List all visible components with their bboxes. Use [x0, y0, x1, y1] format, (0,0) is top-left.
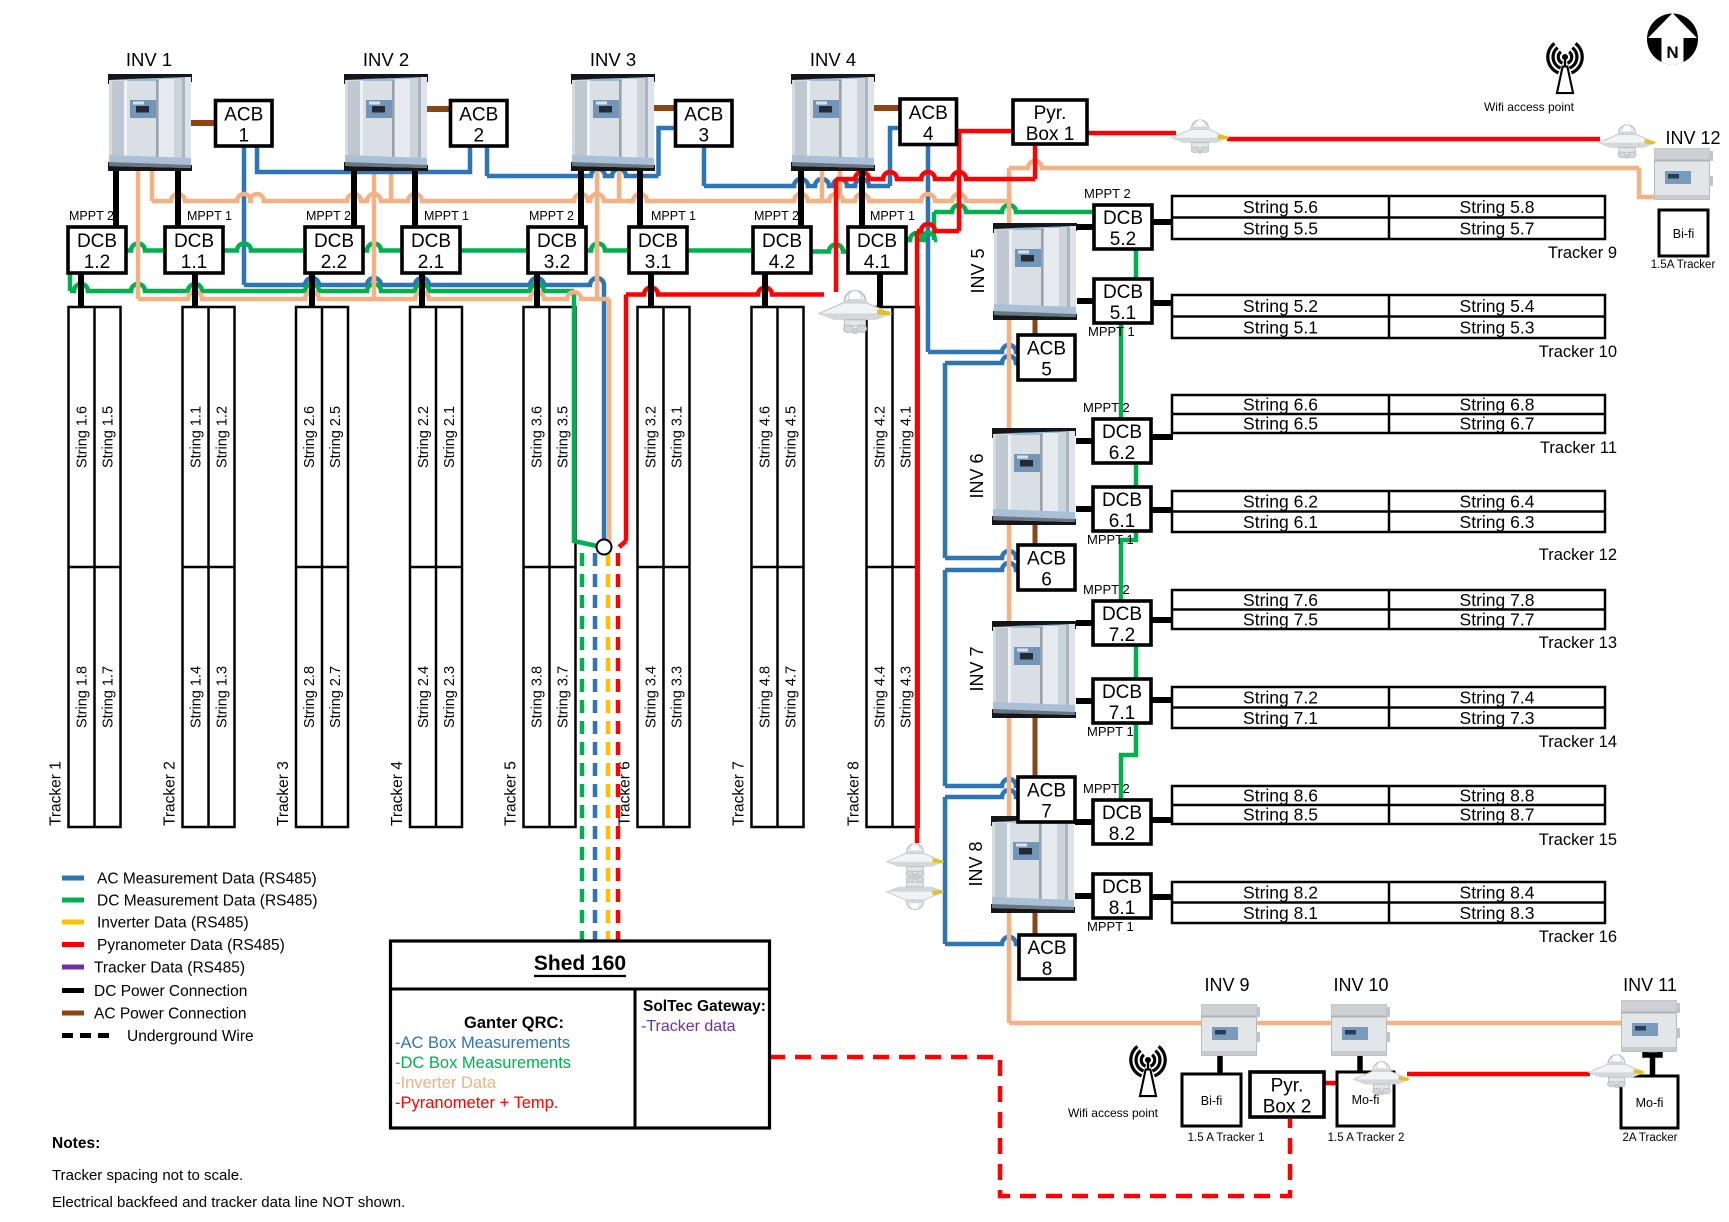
- svg-text:Bi-fi: Bi-fi: [1673, 227, 1695, 241]
- svg-text:1.5 A Tracker 1: 1.5 A Tracker 1: [1188, 1132, 1265, 1144]
- svg-text:5: 5: [1041, 360, 1052, 381]
- svg-text:6.1: 6.1: [1109, 511, 1135, 532]
- svg-text:String 3.3: String 3.3: [670, 666, 686, 728]
- svg-text:String 4.6: String 4.6: [758, 406, 774, 468]
- svg-text:Tracker 10: Tracker 10: [1539, 343, 1617, 361]
- svg-text:7: 7: [1041, 802, 1052, 823]
- svg-text:MPPT 2: MPPT 2: [306, 209, 351, 223]
- svg-text:8: 8: [1042, 959, 1053, 980]
- svg-text:ACB: ACB: [224, 104, 263, 125]
- svg-text:String 5.7: String 5.7: [1460, 218, 1535, 238]
- svg-text:String 4.4: String 4.4: [873, 666, 889, 728]
- svg-text:DCB: DCB: [1103, 282, 1143, 303]
- svg-text:-Pyranometer + Temp.: -Pyranometer + Temp.: [395, 1094, 558, 1112]
- svg-text:7.2: 7.2: [1109, 625, 1135, 646]
- svg-text:INV 12: INV 12: [1665, 128, 1720, 148]
- svg-text:INV 4: INV 4: [810, 49, 856, 70]
- svg-text:ACB: ACB: [1027, 938, 1066, 959]
- svg-text:MPPT 2: MPPT 2: [754, 209, 799, 223]
- svg-text:Ganter QRC:: Ganter QRC:: [464, 1014, 564, 1032]
- svg-text:MPPT 1: MPPT 1: [870, 209, 915, 223]
- svg-text:8.1: 8.1: [1109, 898, 1135, 919]
- svg-text:String 4.3: String 4.3: [899, 666, 915, 728]
- svg-text:String 5.2: String 5.2: [1243, 296, 1318, 316]
- svg-text:String 7.6: String 7.6: [1243, 590, 1318, 610]
- svg-text:Tracker 15: Tracker 15: [1539, 831, 1617, 849]
- svg-text:Tracker 3: Tracker 3: [275, 761, 292, 826]
- svg-text:2A Tracker: 2A Tracker: [1623, 1132, 1678, 1144]
- svg-text:Tracker 13: Tracker 13: [1539, 634, 1617, 652]
- svg-text:String 8.6: String 8.6: [1243, 786, 1318, 806]
- svg-text:DCB: DCB: [1102, 490, 1142, 511]
- svg-text:DCB: DCB: [411, 231, 451, 252]
- svg-text:N: N: [1666, 43, 1678, 62]
- svg-text:String 2.8: String 2.8: [302, 666, 318, 728]
- svg-text:Tracker 7: Tracker 7: [731, 761, 748, 826]
- svg-text:String 5.8: String 5.8: [1460, 197, 1535, 217]
- svg-text:String 1.3: String 1.3: [215, 666, 231, 728]
- svg-text:Box 2: Box 2: [1263, 1097, 1312, 1118]
- svg-text:Wifi access point: Wifi access point: [1484, 100, 1575, 114]
- svg-text:MPPT 1: MPPT 1: [1088, 324, 1135, 339]
- svg-text:DCB: DCB: [762, 231, 802, 252]
- svg-text:String 1.8: String 1.8: [75, 666, 91, 728]
- svg-text:2.2: 2.2: [321, 252, 347, 273]
- svg-text:MPPT 1: MPPT 1: [1087, 724, 1134, 739]
- svg-text:MPPT 1: MPPT 1: [424, 209, 469, 223]
- svg-text:1.5 A Tracker 2: 1.5 A Tracker 2: [1328, 1132, 1405, 1144]
- svg-text:Tracker 14: Tracker 14: [1539, 733, 1617, 751]
- svg-text:String 8.2: String 8.2: [1243, 882, 1318, 902]
- svg-text:String 3.7: String 3.7: [556, 666, 572, 728]
- svg-text:DC Measurement Data (RS485): DC Measurement Data (RS485): [97, 893, 318, 910]
- svg-text:Pyranometer Data (RS485): Pyranometer Data (RS485): [97, 937, 285, 954]
- svg-text:String 3.2: String 3.2: [644, 406, 660, 468]
- svg-text:String 8.7: String 8.7: [1460, 805, 1535, 825]
- svg-text:Inverter Data (RS485): Inverter Data (RS485): [97, 915, 249, 932]
- svg-text:String 2.4: String 2.4: [416, 666, 432, 728]
- svg-text:MPPT 2: MPPT 2: [1083, 400, 1130, 415]
- svg-text:String 5.1: String 5.1: [1243, 317, 1318, 337]
- svg-text:4.1: 4.1: [864, 252, 890, 273]
- svg-text:5.1: 5.1: [1110, 303, 1136, 324]
- svg-text:ACB: ACB: [684, 104, 723, 125]
- svg-text:Box 1: Box 1: [1026, 124, 1075, 145]
- svg-text:3.2: 3.2: [544, 252, 570, 273]
- svg-text:Tracker Data (RS485): Tracker Data (RS485): [94, 960, 245, 977]
- svg-text:String 6.6: String 6.6: [1243, 395, 1318, 415]
- svg-text:String 5.5: String 5.5: [1243, 218, 1318, 238]
- svg-text:DCB: DCB: [174, 231, 214, 252]
- svg-text:DC Power Connection: DC Power Connection: [94, 983, 247, 1000]
- svg-text:Bi-fi: Bi-fi: [1201, 1094, 1223, 1108]
- svg-text:1: 1: [238, 125, 249, 146]
- svg-text:Electrical backfeed and tracke: Electrical backfeed and tracker data lin…: [52, 1194, 405, 1211]
- svg-text:String 5.4: String 5.4: [1460, 296, 1535, 316]
- svg-text:String 2.6: String 2.6: [302, 406, 318, 468]
- svg-text:String 4.7: String 4.7: [784, 666, 800, 728]
- svg-text:String 6.8: String 6.8: [1460, 395, 1535, 415]
- svg-text:1.5A Tracker: 1.5A Tracker: [1651, 259, 1716, 271]
- svg-text:Shed 160: Shed 160: [534, 952, 626, 975]
- svg-text:Mo-fi: Mo-fi: [1352, 1093, 1380, 1107]
- svg-text:8.2: 8.2: [1109, 824, 1135, 845]
- svg-text:String 1.1: String 1.1: [189, 406, 205, 468]
- svg-text:DCB: DCB: [537, 231, 577, 252]
- svg-text:1.2: 1.2: [84, 252, 110, 273]
- svg-text:ACB: ACB: [909, 103, 948, 124]
- svg-text:DCB: DCB: [77, 231, 117, 252]
- svg-text:DCB: DCB: [314, 231, 354, 252]
- svg-text:String 6.5: String 6.5: [1243, 414, 1318, 434]
- svg-text:Tracker 16: Tracker 16: [1539, 928, 1617, 946]
- svg-text:-Inverter Data: -Inverter Data: [395, 1074, 497, 1092]
- svg-text:String 4.2: String 4.2: [873, 406, 889, 468]
- svg-text:String 7.4: String 7.4: [1460, 687, 1535, 707]
- svg-text:DCB: DCB: [1102, 682, 1142, 703]
- svg-text:MPPT 1: MPPT 1: [187, 209, 232, 223]
- svg-text:MPPT 2: MPPT 2: [69, 209, 114, 223]
- svg-text:MPPT 2: MPPT 2: [1083, 781, 1130, 796]
- svg-text:String 8.3: String 8.3: [1460, 903, 1535, 923]
- svg-text:String 2.2: String 2.2: [416, 406, 432, 468]
- svg-text:2: 2: [473, 125, 484, 146]
- svg-text:-AC Box Measurements: -AC Box Measurements: [395, 1034, 570, 1052]
- svg-text:MPPT 2: MPPT 2: [529, 209, 574, 223]
- svg-text:Tracker 2: Tracker 2: [162, 761, 179, 826]
- svg-text:ACB: ACB: [459, 104, 498, 125]
- svg-text:String 7.5: String 7.5: [1243, 609, 1318, 629]
- svg-text:-Tracker data: -Tracker data: [641, 1018, 736, 1035]
- svg-text:String 7.3: String 7.3: [1460, 708, 1535, 728]
- svg-text:ACB: ACB: [1027, 549, 1066, 570]
- svg-text:String 7.1: String 7.1: [1243, 708, 1318, 728]
- svg-text:String 2.7: String 2.7: [328, 666, 344, 728]
- svg-text:String 7.2: String 7.2: [1243, 687, 1318, 707]
- svg-text:2.1: 2.1: [418, 252, 444, 273]
- svg-text:String 6.3: String 6.3: [1460, 512, 1535, 532]
- svg-text:String 7.7: String 7.7: [1460, 609, 1535, 629]
- svg-text:DCB: DCB: [1102, 422, 1142, 443]
- svg-text:String 7.8: String 7.8: [1460, 590, 1535, 610]
- svg-text:String 6.7: String 6.7: [1460, 414, 1535, 434]
- svg-text:Notes:: Notes:: [52, 1135, 100, 1152]
- svg-text:DCB: DCB: [857, 231, 897, 252]
- svg-text:MPPT 2: MPPT 2: [1084, 186, 1131, 201]
- svg-text:MPPT 1: MPPT 1: [1087, 919, 1134, 934]
- svg-text:4: 4: [923, 124, 934, 145]
- svg-text:6: 6: [1041, 570, 1052, 591]
- svg-text:String 3.8: String 3.8: [530, 666, 546, 728]
- svg-text:INV 1: INV 1: [126, 49, 172, 70]
- svg-text:INV 8: INV 8: [966, 841, 986, 886]
- svg-text:String 8.4: String 8.4: [1460, 882, 1535, 902]
- svg-text:String 8.1: String 8.1: [1243, 903, 1318, 923]
- svg-text:DCB: DCB: [1102, 604, 1142, 625]
- svg-text:DCB: DCB: [638, 231, 678, 252]
- svg-text:Tracker 9: Tracker 9: [1548, 244, 1617, 262]
- svg-text:INV 2: INV 2: [363, 49, 409, 70]
- svg-text:Mo-fi: Mo-fi: [1636, 1096, 1664, 1110]
- svg-text:String 3.6: String 3.6: [530, 406, 546, 468]
- svg-text:String 2.5: String 2.5: [328, 406, 344, 468]
- svg-text:Tracker 12: Tracker 12: [1539, 546, 1617, 564]
- svg-text:Tracker 4: Tracker 4: [389, 761, 406, 826]
- svg-text:Wifi access point: Wifi access point: [1068, 1106, 1159, 1120]
- svg-text:String 3.4: String 3.4: [644, 666, 660, 728]
- svg-text:String 6.2: String 6.2: [1243, 491, 1318, 511]
- svg-text:Tracker 1: Tracker 1: [48, 761, 65, 826]
- svg-text:ACB: ACB: [1027, 339, 1066, 360]
- svg-text:DCB: DCB: [1102, 803, 1142, 824]
- svg-text:5.2: 5.2: [1110, 229, 1136, 250]
- svg-text:DCB: DCB: [1103, 208, 1143, 229]
- svg-text:String 6.4: String 6.4: [1460, 491, 1535, 511]
- svg-text:String 1.6: String 1.6: [75, 406, 91, 468]
- svg-text:SolTec Gateway:: SolTec Gateway:: [643, 998, 766, 1015]
- svg-text:Pyr.: Pyr.: [1034, 103, 1067, 124]
- svg-text:-DC Box Measurements: -DC Box Measurements: [395, 1054, 571, 1072]
- svg-text:String 3.5: String 3.5: [556, 406, 572, 468]
- svg-text:String 5.6: String 5.6: [1243, 197, 1318, 217]
- svg-text:INV 3: INV 3: [590, 49, 636, 70]
- svg-text:Tracker 5: Tracker 5: [503, 761, 520, 826]
- svg-text:AC Power Connection: AC Power Connection: [94, 1006, 247, 1023]
- svg-text:String 8.5: String 8.5: [1243, 805, 1318, 825]
- svg-text:MPPT 1: MPPT 1: [1087, 532, 1134, 547]
- svg-text:String 4.1: String 4.1: [899, 406, 915, 468]
- svg-text:String 1.4: String 1.4: [189, 666, 205, 728]
- svg-text:String 4.5: String 4.5: [784, 406, 800, 468]
- svg-text:ACB: ACB: [1027, 781, 1066, 802]
- svg-text:MPPT 1: MPPT 1: [651, 209, 696, 223]
- svg-text:DCB: DCB: [1102, 877, 1142, 898]
- svg-text:MPPT 2: MPPT 2: [1083, 582, 1130, 597]
- svg-text:3: 3: [698, 125, 709, 146]
- svg-text:String 3.1: String 3.1: [670, 406, 686, 468]
- svg-text:String 6.1: String 6.1: [1243, 512, 1318, 532]
- svg-text:INV 9: INV 9: [1204, 975, 1249, 995]
- svg-text:Tracker 8: Tracker 8: [846, 761, 863, 826]
- svg-text:INV 7: INV 7: [967, 646, 987, 691]
- svg-text:String 1.5: String 1.5: [101, 406, 117, 468]
- svg-text:String 2.3: String 2.3: [442, 666, 458, 728]
- svg-text:String 5.3: String 5.3: [1460, 317, 1535, 337]
- svg-text:INV 5: INV 5: [968, 248, 988, 293]
- svg-text:Pyr.: Pyr.: [1271, 1076, 1304, 1097]
- svg-text:7.1: 7.1: [1109, 703, 1135, 724]
- svg-text:Tracker 11: Tracker 11: [1540, 439, 1617, 457]
- svg-text:String 1.7: String 1.7: [101, 666, 117, 728]
- svg-text:Underground Wire: Underground Wire: [127, 1028, 254, 1045]
- svg-text:String 2.1: String 2.1: [442, 406, 458, 468]
- svg-text:1.1: 1.1: [181, 252, 207, 273]
- svg-text:String 4.8: String 4.8: [758, 666, 774, 728]
- svg-text:String 8.8: String 8.8: [1460, 786, 1535, 806]
- svg-text:INV 11: INV 11: [1623, 975, 1677, 995]
- svg-text:String 1.2: String 1.2: [215, 406, 231, 468]
- svg-text:3.1: 3.1: [645, 252, 671, 273]
- svg-text:6.2: 6.2: [1109, 443, 1135, 464]
- svg-text:Tracker spacing not to scale.: Tracker spacing not to scale.: [52, 1167, 243, 1184]
- svg-text:INV 10: INV 10: [1333, 975, 1388, 995]
- svg-text:AC Measurement Data (RS485): AC Measurement Data (RS485): [97, 871, 317, 888]
- svg-text:4.2: 4.2: [769, 252, 795, 273]
- svg-text:INV 6: INV 6: [967, 453, 987, 498]
